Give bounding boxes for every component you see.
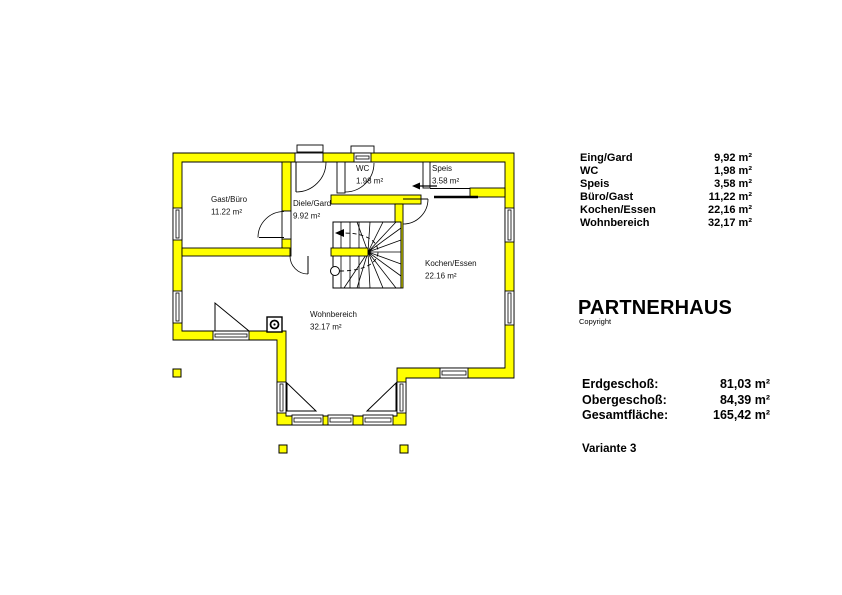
room-value: 3,58 m² <box>714 178 752 191</box>
room-area: 11.22 m² <box>211 208 242 217</box>
window <box>292 415 323 425</box>
total-value: 81,03 m² <box>720 377 770 393</box>
table-row: Büro/Gast11,22 m² <box>580 191 752 204</box>
room-area: 22.16 m² <box>425 272 457 281</box>
room-area: 32.17 m² <box>310 323 342 332</box>
room-value: 32,17 m² <box>708 217 752 230</box>
window <box>397 382 406 413</box>
room-label: Kochen/Essen <box>425 259 477 268</box>
room-area: 3.58 m² <box>432 177 459 186</box>
window <box>363 415 393 425</box>
room-area: 9.92 m² <box>293 212 320 221</box>
total-value: 165,42 m² <box>713 408 770 424</box>
room-area: 1.98 m² <box>356 177 383 186</box>
room-value: 1,98 m² <box>714 165 752 178</box>
window <box>440 368 468 378</box>
room-name: Kochen/Essen <box>580 204 656 217</box>
table-row: Kochen/Essen22,16 m² <box>580 204 752 217</box>
room-label: WC <box>356 164 370 173</box>
stair-spine-wall <box>331 248 368 256</box>
total-value: 84,39 m² <box>720 393 770 409</box>
totals-table: Erdgeschoß:81,03 m² Obergeschoß:84,39 m²… <box>582 377 770 424</box>
page-title: PARTNERHAUS <box>578 298 732 318</box>
room-label: Gast/Büro <box>211 195 248 204</box>
window <box>173 291 182 323</box>
window <box>277 382 286 413</box>
room-label: Wohnbereich <box>310 310 357 319</box>
exterior-walls <box>173 153 514 425</box>
stair-walk-line-start <box>331 267 340 276</box>
chimney-icon <box>267 317 282 332</box>
table-row: Erdgeschoß:81,03 m² <box>582 377 770 393</box>
window <box>173 208 182 240</box>
window <box>505 208 514 242</box>
room-name: Eing/Gard <box>580 152 633 165</box>
window <box>328 415 353 425</box>
window <box>505 291 514 325</box>
room-value: 22,16 m² <box>708 204 752 217</box>
variant-label: Variante 3 <box>582 443 636 455</box>
room-name: Wohnbereich <box>580 217 649 230</box>
room-name: WC <box>580 165 598 178</box>
room-label: Speis <box>432 164 452 173</box>
window <box>213 331 249 340</box>
room-area-table: Eing/Gard9,92 m² WC1,98 m² Speis3,58 m² … <box>580 152 752 230</box>
table-row: Gesamtfläche:165,42 m² <box>582 408 770 424</box>
table-row: WC1,98 m² <box>580 165 752 178</box>
total-label: Obergeschoß: <box>582 393 667 409</box>
table-row: Eing/Gard9,92 m² <box>580 152 752 165</box>
table-row: Speis3,58 m² <box>580 178 752 191</box>
window <box>351 146 374 162</box>
room-name: Speis <box>580 178 609 191</box>
copyright-note: Copyright <box>579 318 732 326</box>
room-label: Diele/Gard <box>293 199 331 208</box>
table-row: Wohnbereich32,17 m² <box>580 217 752 230</box>
staircase <box>331 222 402 288</box>
room-name: Büro/Gast <box>580 191 633 204</box>
brand-block: PARTNERHAUS Copyright <box>578 298 732 326</box>
table-row: Obergeschoß:84,39 m² <box>582 393 770 409</box>
total-label: Gesamtfläche: <box>582 408 668 424</box>
room-value: 9,92 m² <box>714 152 752 165</box>
room-value: 11,22 m² <box>709 191 752 204</box>
total-label: Erdgeschoß: <box>582 377 658 393</box>
